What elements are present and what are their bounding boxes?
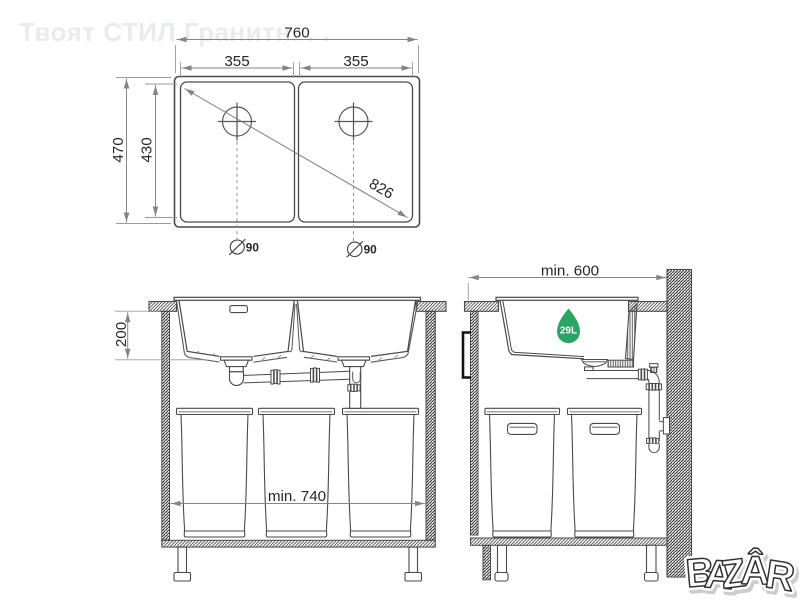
svg-text:760: 760 — [284, 24, 309, 41]
svg-text:355: 355 — [224, 53, 249, 70]
svg-text:200: 200 — [113, 322, 130, 347]
svg-text:90: 90 — [246, 241, 260, 255]
svg-text:min. 740: min. 740 — [268, 488, 326, 505]
svg-text:355: 355 — [343, 53, 368, 70]
svg-text:90: 90 — [364, 243, 378, 257]
svg-text:470: 470 — [110, 137, 127, 162]
svg-text:430: 430 — [139, 137, 156, 162]
svg-text:min. 600: min. 600 — [541, 262, 599, 279]
svg-text:29L: 29L — [560, 326, 577, 337]
